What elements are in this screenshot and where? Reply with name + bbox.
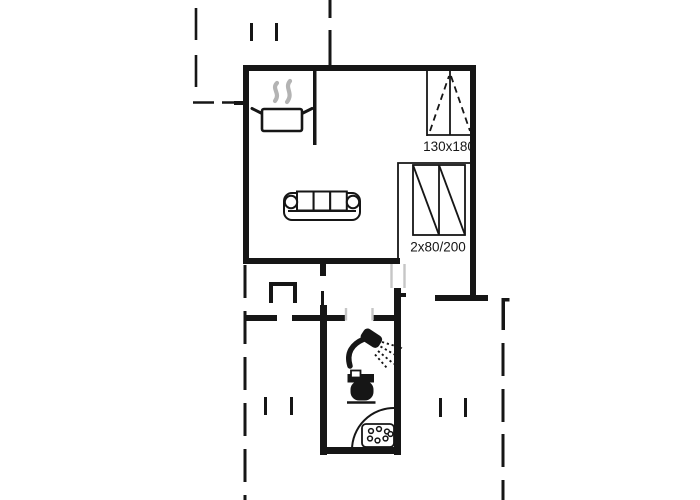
dashed-marks-bottom-left-room [266, 397, 292, 415]
bedroom-wall-corner-horizontal [502, 298, 510, 302]
wall-right [470, 65, 476, 297]
hall-wall-center-segment [292, 315, 345, 321]
floor-plan: 2x80/200 130x180 [0, 0, 700, 500]
cooking-pot-icon [252, 109, 312, 132]
toilet-icon [347, 371, 376, 403]
wall-left [243, 65, 249, 262]
hall-thin-wall [321, 291, 324, 305]
bathroom-wall-bottom [320, 447, 400, 454]
window-size-label: 130x180 [423, 139, 475, 154]
wall-bottom [243, 258, 400, 264]
wardrobe-size-label: 2x80/200 [410, 240, 466, 255]
steam-icon [275, 81, 290, 102]
niche-right [293, 282, 297, 303]
bathroom-door-opening [346, 308, 373, 321]
hall-wall-left-segment [244, 315, 277, 321]
niche-top [269, 282, 297, 286]
terrace-dashed-outline-top-left [193, 8, 243, 103]
hall-stub-wall [320, 264, 326, 276]
dashed-marks-bottom-right-room [441, 398, 466, 417]
hall-door-opening [392, 264, 405, 288]
wall-top [243, 65, 476, 71]
wardrobe-icon [413, 165, 465, 235]
window-icon [427, 71, 473, 136]
niche-left [269, 282, 273, 303]
bedroom-right-walls [435, 295, 510, 330]
bedroom-wall-top [435, 295, 488, 301]
bathroom-wall-right [394, 288, 401, 455]
bathroom-wall-left [320, 305, 327, 455]
bedroom-wall-corner-vertical [502, 298, 506, 330]
bathroom-corner-tick [398, 293, 406, 297]
terrace-attach-tick [234, 101, 243, 105]
floor-plan-canvas: 2x80/200 130x180 [0, 0, 700, 500]
shower-tray-icon [352, 408, 394, 450]
sofa-icon [284, 192, 360, 221]
entrance-niche [269, 282, 297, 303]
kitchen-partition-wall [313, 71, 317, 145]
dashed-marks-top [252, 23, 277, 41]
